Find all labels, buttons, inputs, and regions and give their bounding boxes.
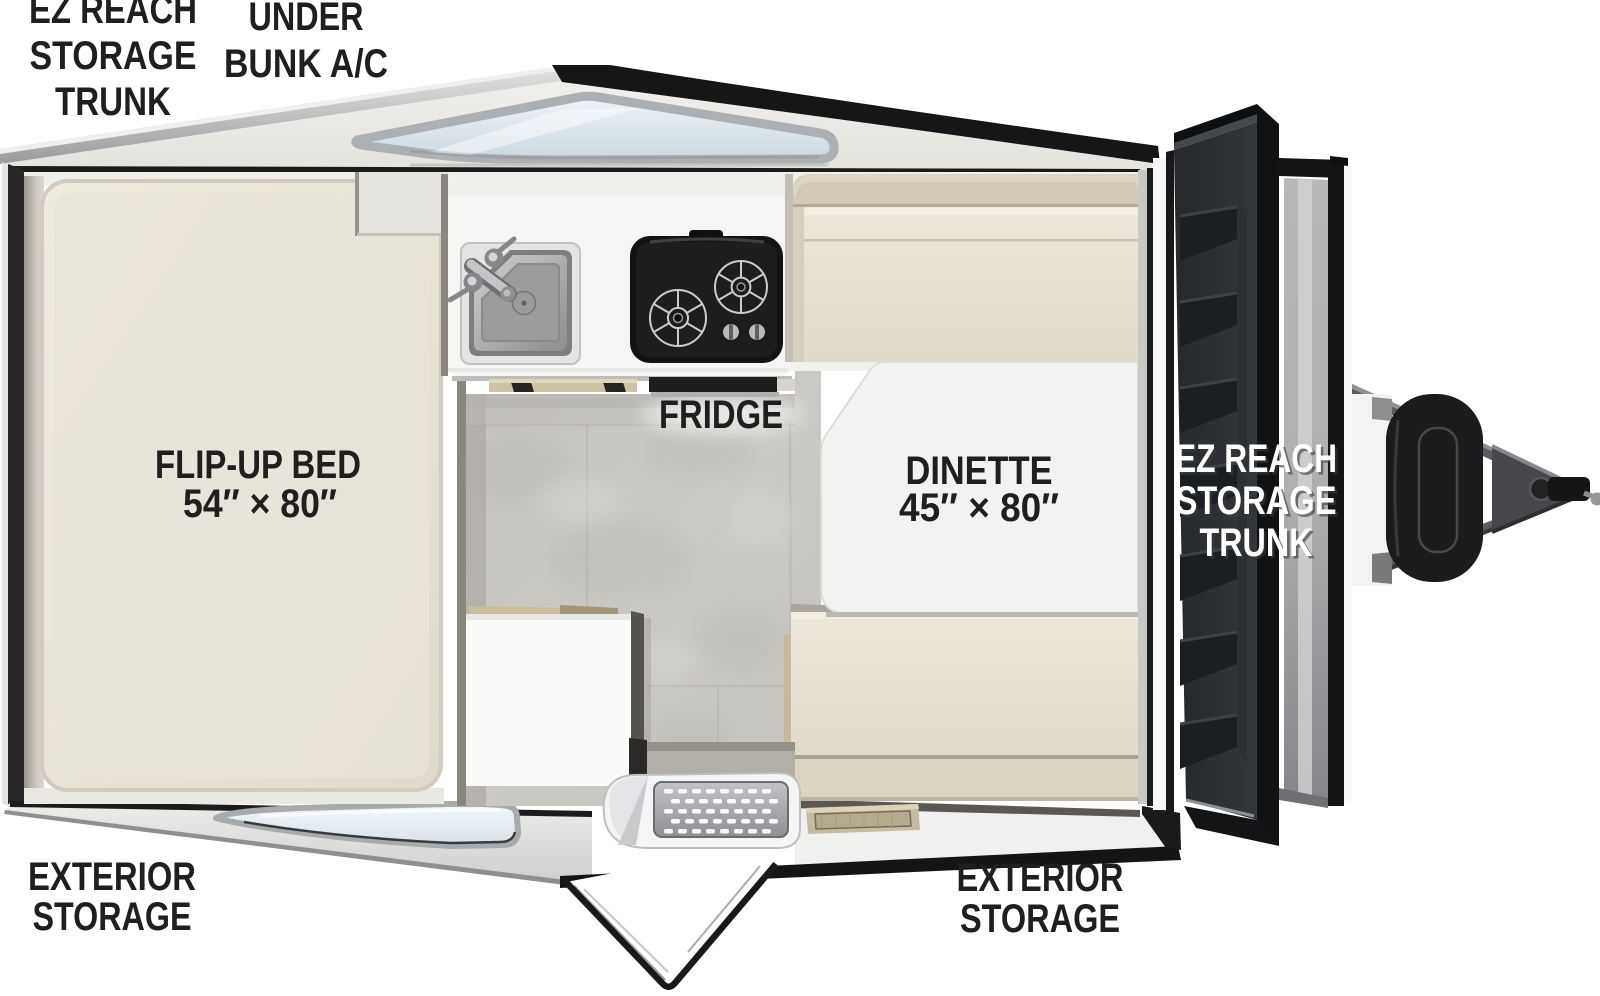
svg-text:STORAGE: STORAGE: [33, 895, 192, 939]
svg-text:EZ REACH: EZ REACH: [1175, 437, 1337, 481]
svg-text:TRUNK: TRUNK: [1200, 521, 1313, 565]
svg-text:FLIP-UP BED: FLIP-UP BED: [155, 443, 361, 487]
svg-text:54″ × 80″: 54″ × 80″: [183, 482, 337, 526]
svg-text:STORAGE: STORAGE: [960, 897, 1120, 941]
svg-text:FRIDGE: FRIDGE: [659, 393, 783, 437]
svg-text:UNDER: UNDER: [249, 0, 364, 39]
svg-text:BUNK A/C: BUNK A/C: [224, 42, 388, 86]
svg-text:STORAGE: STORAGE: [1176, 479, 1337, 523]
svg-text:45″ × 80″: 45″ × 80″: [899, 486, 1059, 530]
svg-text:STORAGE: STORAGE: [30, 34, 197, 78]
svg-text:EZ REACH: EZ REACH: [29, 0, 197, 32]
svg-text:EXTERIOR: EXTERIOR: [28, 855, 196, 899]
svg-text:TRUNK: TRUNK: [55, 80, 171, 124]
svg-text:EXTERIOR: EXTERIOR: [957, 856, 1124, 900]
